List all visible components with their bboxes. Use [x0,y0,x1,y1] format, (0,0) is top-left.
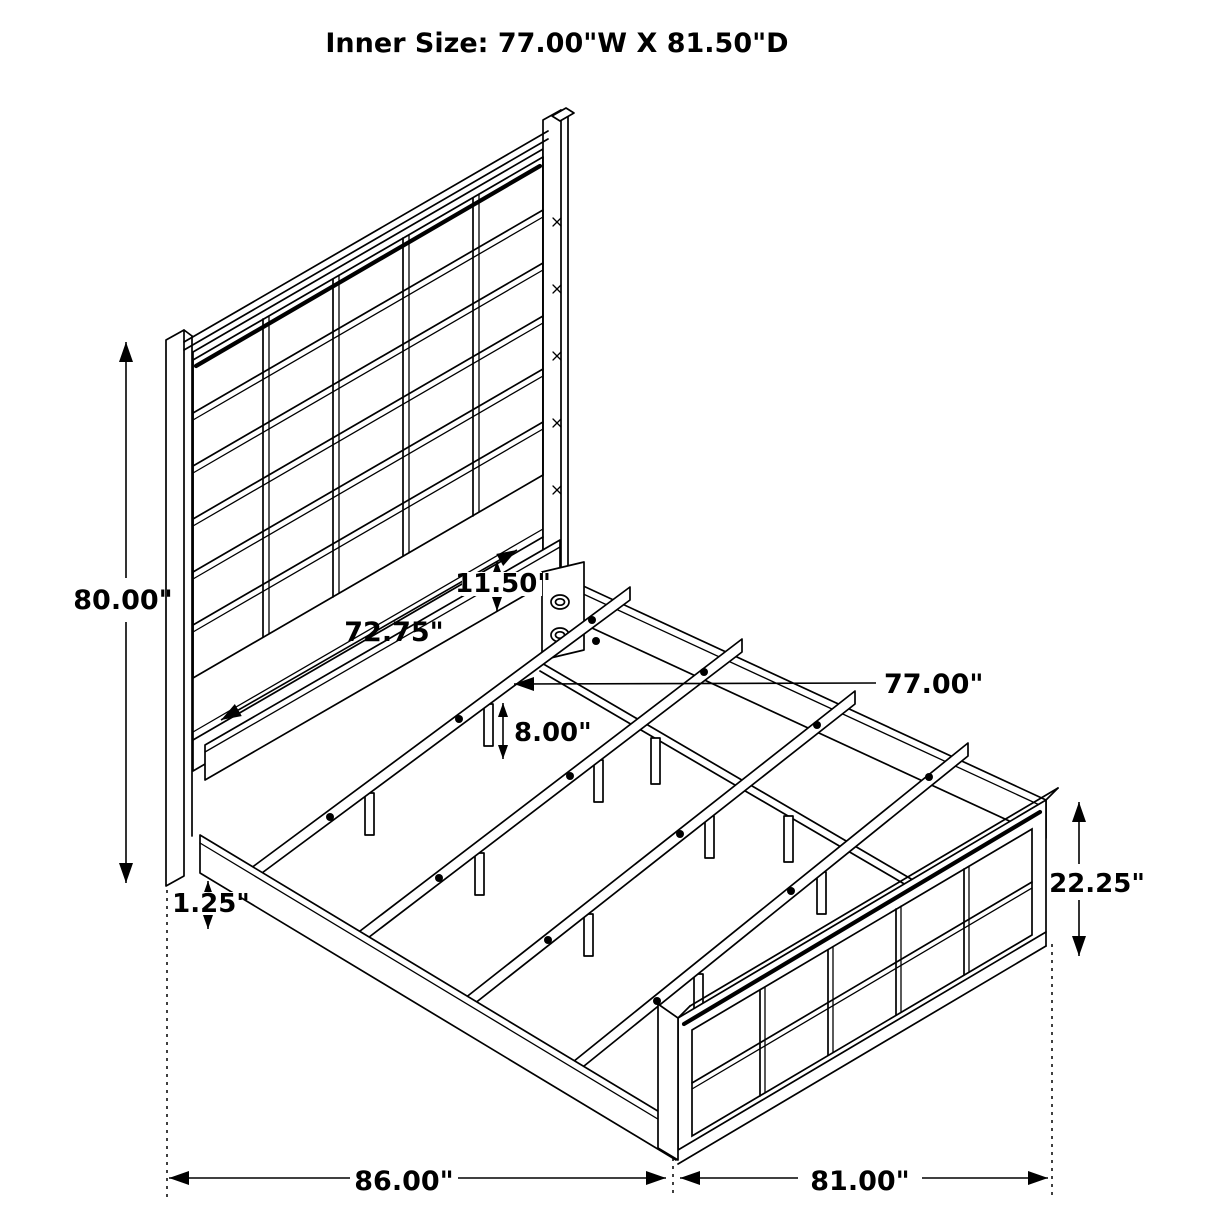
center-rail-leg [651,738,660,784]
dim-rail-floor-gap: 1.25" [172,881,250,929]
dim-headboard-height: 80.00" [73,342,172,883]
dim-label-slat-floor-height: 8.00" [514,718,592,748]
dim-slat-floor-height: 8.00" [503,703,592,759]
dim-overall-width: 81.00" [680,1166,1048,1197]
footboard-left-stile [658,1004,678,1160]
dim-label-overall-width: 81.00" [810,1166,909,1197]
screw-dot [592,637,600,645]
diagram-title: Inner Size: 77.00"W X 81.50"D [325,28,788,59]
dim-label-slat-length: 77.00" [884,669,983,700]
bed-frame-dimension-diagram: 80.00" 1.25" 72.75" 11.50" 77.00" 8.00" [0,0,1214,1214]
dim-label-footboard-height: 22.25" [1049,869,1145,899]
center-rail-leg [784,816,793,862]
dim-label-headboard-panel-gap: 11.50" [455,569,551,599]
dim-label-headboard-height: 80.00" [73,585,172,616]
dim-label-headboard-inner-width: 72.75" [344,617,443,648]
right-side-rail [566,578,1046,838]
leg-top-cap [552,108,574,121]
line-drawing: 80.00" 1.25" 72.75" 11.50" 77.00" 8.00" [0,0,1214,1214]
slat [347,639,742,954]
dim-label-overall-length: 86.00" [354,1166,453,1197]
headboard [166,108,574,886]
dim-footboard-height: 22.25" [1049,802,1145,956]
dim-label-rail-floor-gap: 1.25" [172,889,250,919]
dim-overall-length: 86.00" [169,1166,666,1197]
